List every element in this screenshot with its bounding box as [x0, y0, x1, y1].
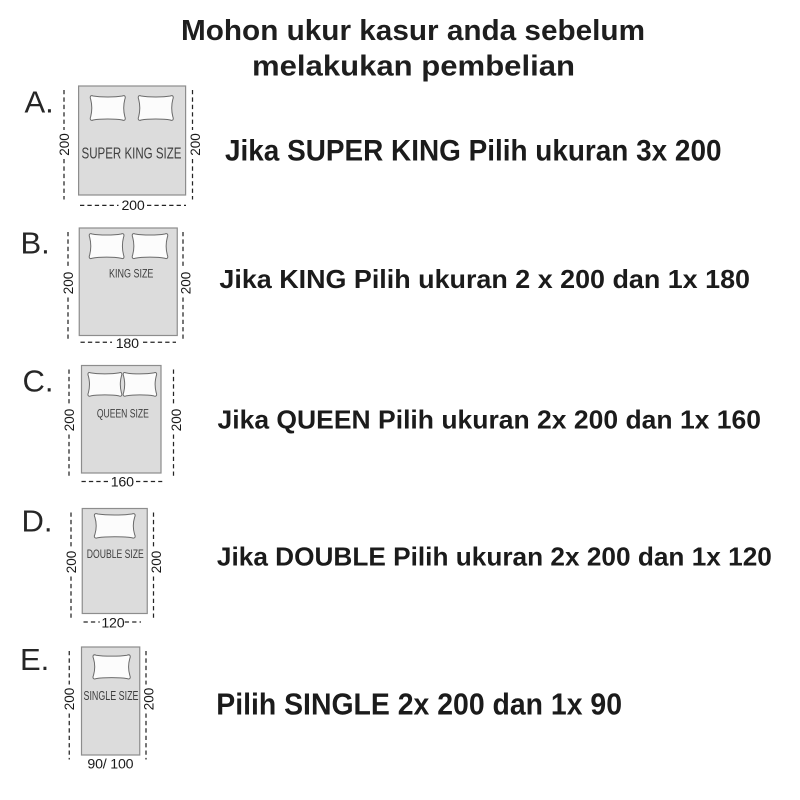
svg-text:200: 200: [57, 133, 72, 156]
svg-text:90/ 100: 90/ 100: [87, 756, 133, 772]
svg-text:200: 200: [188, 133, 203, 156]
svg-text:melakukan pembelian: melakukan pembelian: [252, 51, 575, 83]
svg-text:200: 200: [178, 272, 193, 295]
svg-text:C.: C.: [23, 364, 54, 399]
svg-text:A.: A.: [25, 84, 54, 119]
svg-text:Jika SUPER KING Pilih ukuran 3: Jika SUPER KING Pilih ukuran 3x 200: [225, 135, 722, 168]
svg-text:160: 160: [111, 475, 134, 491]
svg-text:DOUBLE SIZE: DOUBLE SIZE: [87, 547, 144, 561]
svg-text:B.: B.: [21, 225, 50, 260]
svg-text:200: 200: [64, 551, 79, 574]
svg-text:180: 180: [116, 336, 139, 352]
svg-text:Jika QUEEN Pilih ukuran 2x 200: Jika QUEEN Pilih ukuran 2x 200 dan 1x 16…: [218, 405, 762, 435]
svg-text:Jika DOUBLE Pilih ukuran 2x 20: Jika DOUBLE Pilih ukuran 2x 200 dan 1x 1…: [217, 542, 772, 572]
svg-text:200: 200: [169, 409, 184, 432]
svg-text:Mohon ukur kasur anda sebelum: Mohon ukur kasur anda sebelum: [181, 15, 645, 47]
svg-text:200: 200: [62, 688, 77, 711]
svg-text:E.: E.: [20, 642, 49, 677]
svg-text:200: 200: [141, 688, 156, 711]
svg-text:SUPER KING SIZE: SUPER KING SIZE: [82, 146, 182, 163]
svg-text:120: 120: [101, 616, 124, 632]
svg-text:D.: D.: [22, 504, 53, 539]
svg-text:200: 200: [121, 198, 144, 214]
svg-text:KING SIZE: KING SIZE: [109, 269, 154, 281]
svg-text:Pilih SINGLE 2x 200 dan 1x 90: Pilih SINGLE 2x 200 dan 1x 90: [216, 687, 622, 722]
svg-text:Jika KING Pilih ukuran 2 x 200: Jika KING Pilih ukuran 2 x 200 dan 1x 18…: [219, 264, 750, 294]
svg-text:200: 200: [61, 272, 76, 295]
svg-text:200: 200: [149, 551, 164, 574]
svg-text:QUEEN SIZE: QUEEN SIZE: [97, 406, 149, 420]
svg-text:SINGLE SIZE: SINGLE SIZE: [84, 688, 139, 703]
svg-text:200: 200: [62, 409, 77, 432]
